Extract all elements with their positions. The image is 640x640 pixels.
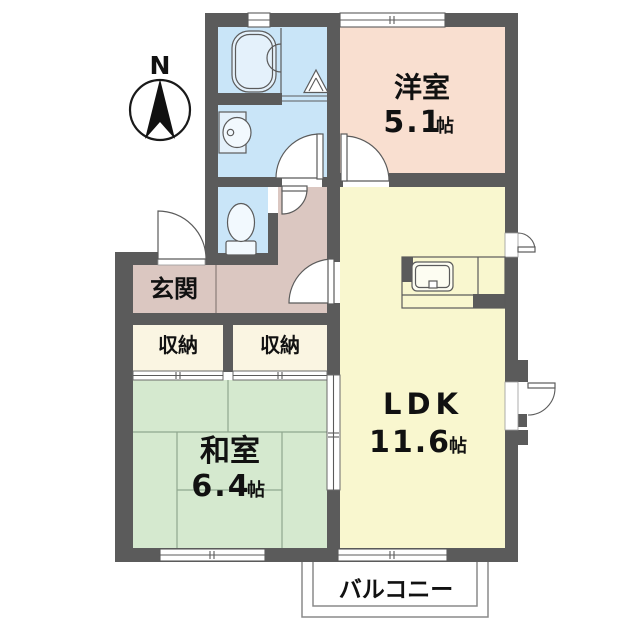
japanese-room-size: 6.4 xyxy=(191,469,250,504)
wall-left xyxy=(115,252,133,562)
wall-bath-column-right xyxy=(327,13,340,187)
wall-storage-north xyxy=(133,313,340,325)
wall-bath-divider xyxy=(205,93,282,105)
western-door-leaf xyxy=(341,134,347,181)
toilet-door-opening xyxy=(268,188,278,213)
ldk-floor xyxy=(340,187,505,548)
wall-storage-divider xyxy=(223,325,233,372)
balcony-label: バルコニー xyxy=(339,577,454,603)
floor-plan-drawing: N 洋室 5.1 帖 LDK 11.6 帖 和室 6.4 帖 玄関 収納 収納 … xyxy=(0,0,640,640)
entry-door-stop xyxy=(517,414,527,427)
entry-door-opening xyxy=(505,382,518,430)
kitchen-sink-icon xyxy=(412,262,453,291)
storage-right-label: 収納 xyxy=(260,333,300,357)
wall-washroom-south-left xyxy=(205,177,282,187)
entrance-label: 玄関 xyxy=(150,275,198,303)
compass: N xyxy=(130,51,190,140)
wall-hall-ldk-upper xyxy=(327,187,340,262)
toilet-icon xyxy=(226,204,256,256)
storage-left-label: 収納 xyxy=(158,333,198,357)
kitchen-wall-stub-left xyxy=(402,257,413,282)
japanese-room-size-unit: 帖 xyxy=(247,479,265,501)
back-door-opening xyxy=(505,233,518,257)
kitchen-wall-stub-right xyxy=(473,294,505,308)
wall-entry-jamb-top xyxy=(505,360,528,382)
ldk-size: 11.6 xyxy=(369,425,451,460)
wall-bath-column-left xyxy=(205,13,218,265)
western-room-label: 洋室 xyxy=(394,71,450,104)
vanity-sink-icon xyxy=(219,112,251,153)
wall-entry-jamb-bottom xyxy=(505,430,528,445)
floor-plan: N 洋室 5.1 帖 LDK 11.6 帖 和室 6.4 帖 玄関 収納 収納 … xyxy=(0,0,640,640)
washroom-door-leaf xyxy=(317,134,323,179)
japanese-room-label: 和室 xyxy=(200,434,260,469)
bathroom-doorway-floor xyxy=(282,93,327,105)
hall-ldk-door-leaf xyxy=(328,259,334,304)
toilet-door-leaf xyxy=(282,186,307,191)
ldk-size-unit: 帖 xyxy=(449,435,467,457)
wall-japanese-ldk-lower xyxy=(327,490,340,548)
wall-right xyxy=(505,13,518,562)
entry-door-swing xyxy=(528,388,555,415)
back-door-leaf xyxy=(518,247,535,252)
entry-door-leaf xyxy=(528,383,555,388)
wall-toilet-right xyxy=(268,213,278,258)
wall-washroom-south-right xyxy=(322,177,340,187)
entrance-door-swing xyxy=(158,211,206,259)
western-room-size: 5.1 xyxy=(383,105,442,140)
compass-north-label: N xyxy=(150,51,171,80)
ldk-label: LDK xyxy=(383,387,463,421)
western-room-size-unit: 帖 xyxy=(436,115,454,137)
